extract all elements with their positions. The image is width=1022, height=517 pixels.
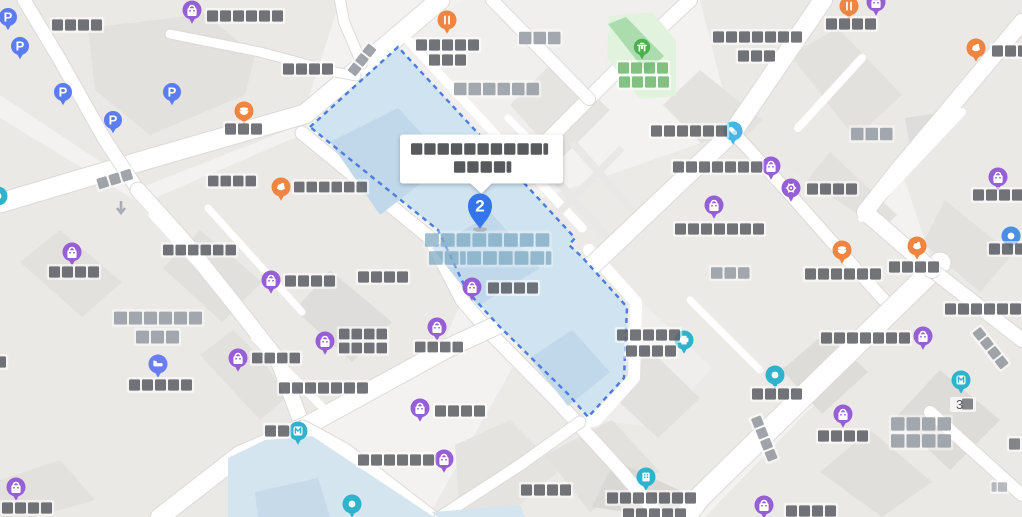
svg-text:P: P bbox=[59, 85, 68, 100]
svg-text:2: 2 bbox=[475, 197, 484, 216]
svg-text:P: P bbox=[16, 39, 25, 54]
svg-text:P: P bbox=[4, 10, 13, 25]
svg-text:P: P bbox=[109, 113, 118, 128]
svg-text:P: P bbox=[168, 85, 177, 100]
